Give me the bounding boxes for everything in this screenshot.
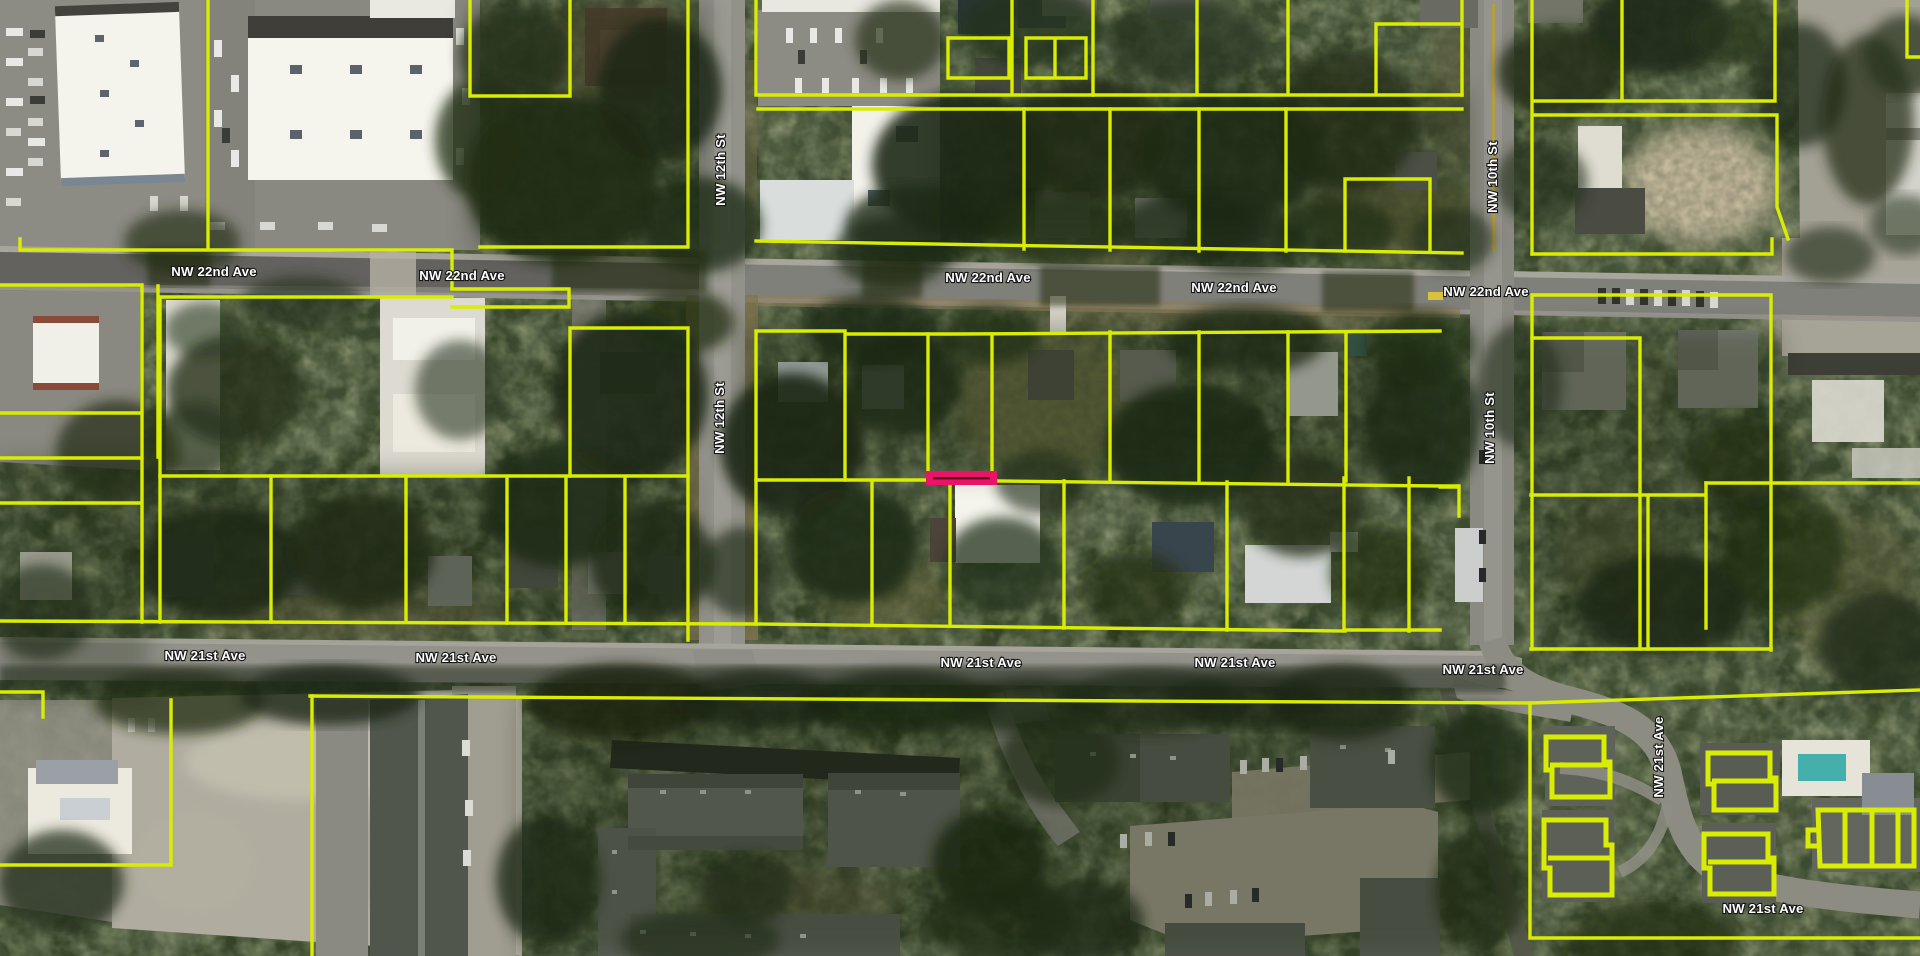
svg-text:NW 22nd Ave: NW 22nd Ave xyxy=(1443,284,1529,299)
svg-text:NW 21st Ave: NW 21st Ave xyxy=(1722,901,1803,916)
svg-text:NW 22nd Ave: NW 22nd Ave xyxy=(945,270,1031,285)
svg-text:NW 21st Ave: NW 21st Ave xyxy=(1442,662,1523,677)
svg-text:NW 22nd Ave: NW 22nd Ave xyxy=(1191,280,1277,295)
svg-text:NW 10th St: NW 10th St xyxy=(1485,141,1500,213)
svg-text:NW 10th St: NW 10th St xyxy=(1482,392,1497,464)
svg-text:NW 21st Ave: NW 21st Ave xyxy=(1651,716,1666,797)
svg-text:NW 22nd Ave: NW 22nd Ave xyxy=(171,264,257,279)
svg-text:NW 21st Ave: NW 21st Ave xyxy=(1194,655,1275,670)
svg-text:NW 21st Ave: NW 21st Ave xyxy=(415,650,496,665)
svg-text:NW 22nd Ave: NW 22nd Ave xyxy=(419,268,505,283)
svg-text:NW 21st Ave: NW 21st Ave xyxy=(164,648,245,663)
svg-text:NW 21st Ave: NW 21st Ave xyxy=(940,655,1021,670)
svg-text:NW 12th St: NW 12th St xyxy=(713,134,728,206)
svg-text:NW 12th St: NW 12th St xyxy=(712,382,727,454)
